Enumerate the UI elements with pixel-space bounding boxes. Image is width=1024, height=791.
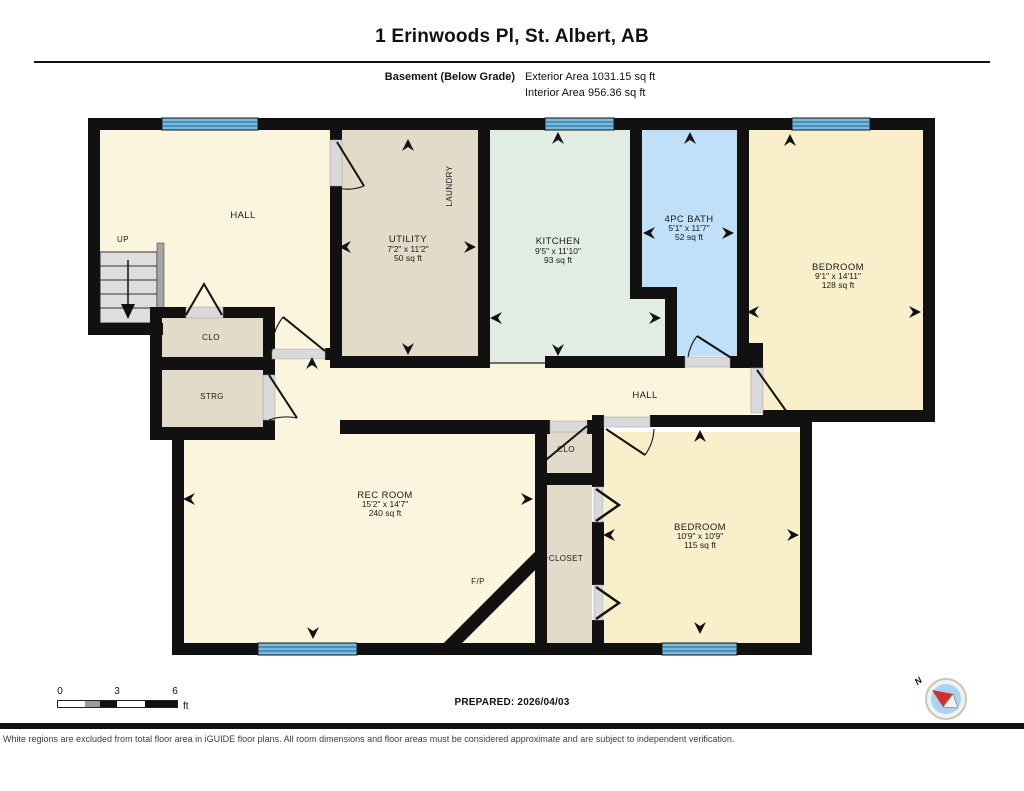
- footer-divider: [0, 723, 1024, 729]
- label-up: UP: [117, 235, 129, 244]
- label-clo-left: CLO: [202, 333, 220, 342]
- label-bedroom-b-area: 115 sq ft: [684, 540, 717, 550]
- label-clo-mid: CLO: [557, 445, 575, 454]
- room-closet: [547, 485, 592, 643]
- label-laundry: LAUNDRY: [445, 165, 454, 206]
- prepared-date: PREPARED: 2026/04/03: [0, 697, 1024, 708]
- window: [662, 643, 737, 655]
- floor-plan-drawing: HALL UP LAUNDRY UTILITY 7'2" x 11'2" 50 …: [0, 0, 1024, 791]
- label-kitchen-area: 93 sq ft: [544, 255, 573, 265]
- window: [162, 118, 258, 130]
- room-fills: [88, 130, 923, 643]
- label-bath-area: 52 sq ft: [675, 232, 704, 242]
- room-bath-upper: [642, 130, 737, 287]
- scale-tick-6: 6: [165, 686, 185, 697]
- room-bath-lower: [677, 287, 737, 356]
- window: [545, 118, 614, 130]
- label-hall-top: HALL: [230, 210, 255, 221]
- label-hall-mid: HALL: [632, 390, 657, 401]
- room-hall-mid: [275, 360, 753, 422]
- label-strg: STRG: [200, 392, 224, 401]
- room-kitchen-open: [490, 356, 545, 363]
- label-closet: CLOSET: [549, 554, 583, 563]
- floor-plan-page: 1 Erinwoods Pl, St. Albert, AB Basement …: [0, 0, 1024, 791]
- window: [792, 118, 870, 130]
- outside-patch: [88, 335, 150, 361]
- stair-handrail: [157, 243, 164, 315]
- label-rec-area: 240 sq ft: [369, 508, 402, 518]
- window: [258, 643, 357, 655]
- label-fp: F/P: [471, 577, 485, 586]
- label-utility-area: 50 sq ft: [394, 253, 423, 263]
- label-bedroom-tr-area: 128 sq ft: [822, 280, 855, 290]
- disclaimer-text: White regions are excluded from total fl…: [3, 734, 1021, 744]
- compass: [920, 674, 970, 724]
- scale-tick-3: 3: [107, 686, 127, 697]
- scale-tick-0: 0: [50, 686, 70, 697]
- room-kitchen-ext: [630, 299, 665, 356]
